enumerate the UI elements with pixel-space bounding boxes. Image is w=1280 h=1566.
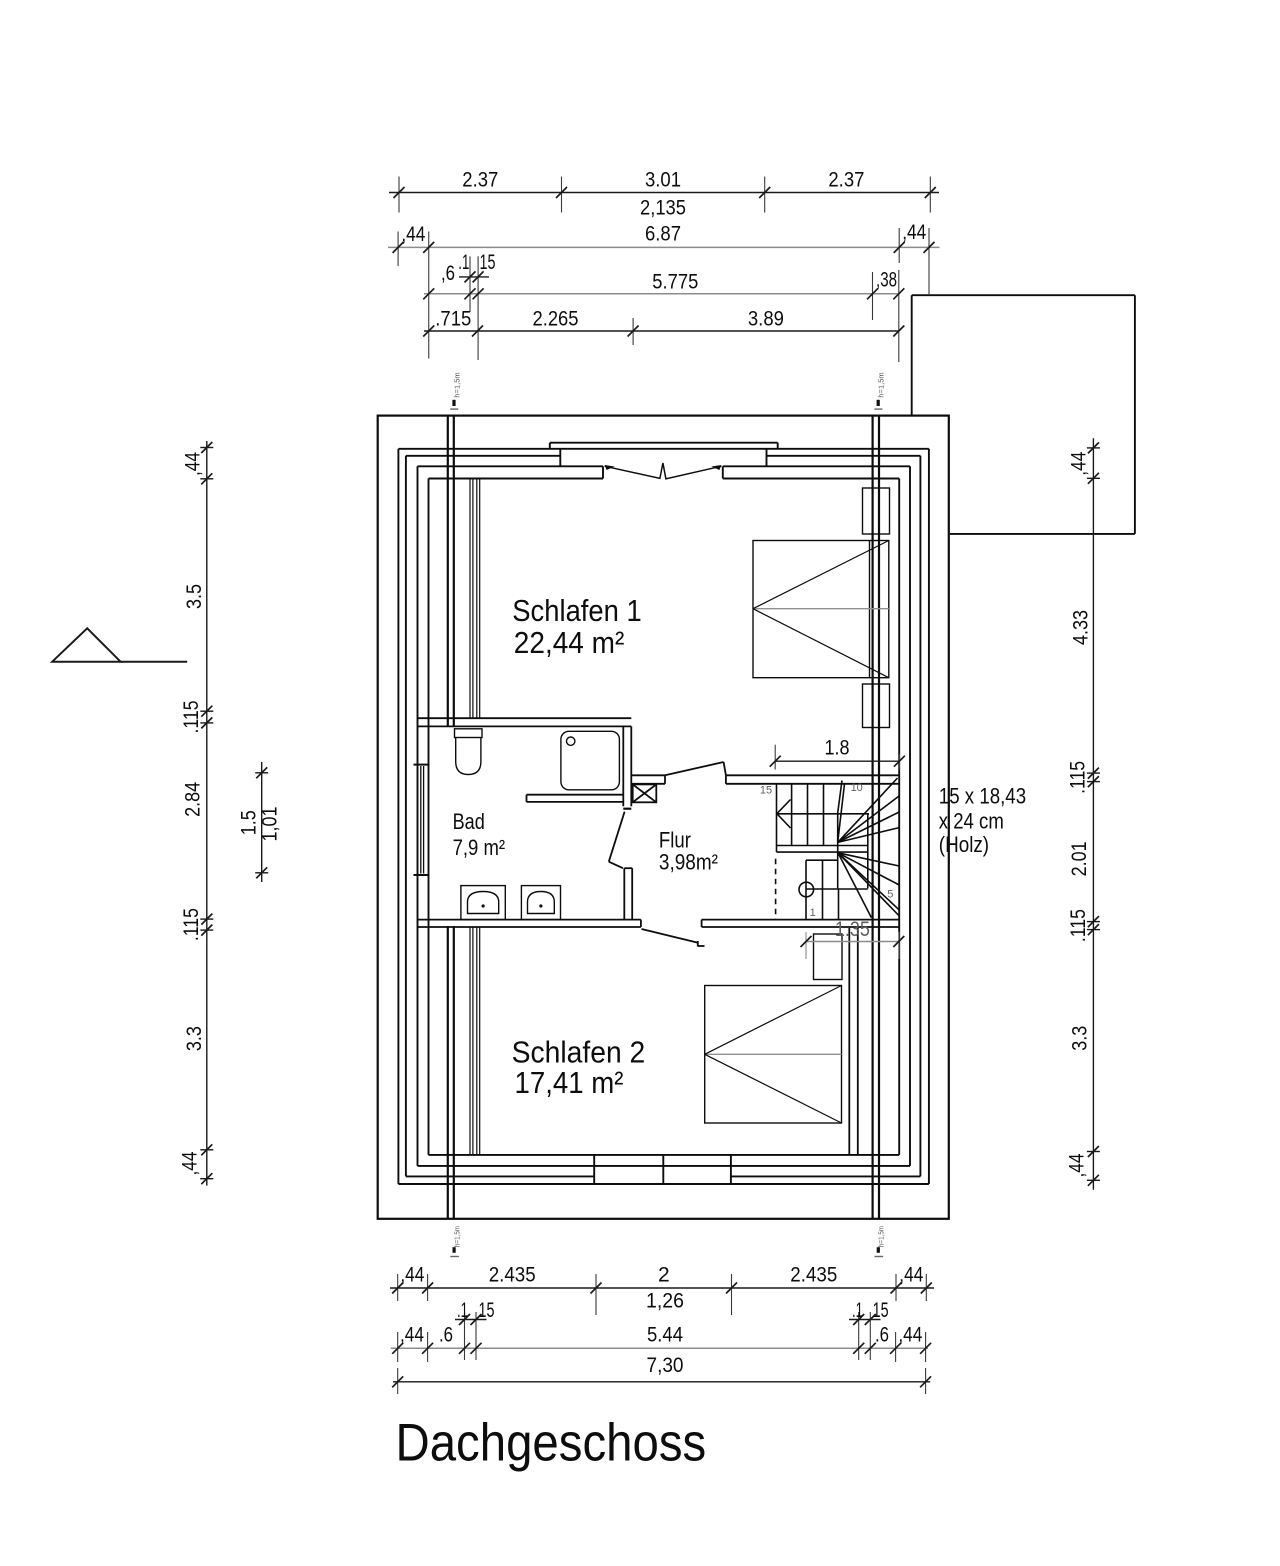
svg-text:,38: ,38: [876, 269, 897, 292]
svg-text:.1: .1: [457, 1299, 468, 1322]
svg-text:Dachgeschoss: Dachgeschoss: [396, 1414, 707, 1473]
svg-text:22,44 m²: 22,44 m²: [514, 625, 625, 660]
svg-text:,44: ,44: [1068, 451, 1091, 475]
svg-text:.115: .115: [180, 908, 203, 941]
svg-text:5: 5: [887, 889, 893, 901]
svg-text:6.87: 6.87: [645, 223, 681, 246]
svg-text:.1: .1: [458, 251, 469, 274]
svg-text:h=1,5m: h=1,5m: [453, 372, 462, 397]
svg-text:3.3: 3.3: [183, 1026, 206, 1051]
svg-text:,44: ,44: [182, 452, 205, 476]
svg-text:.115: .115: [1067, 909, 1090, 942]
svg-text:x 24 cm: x 24 cm: [939, 809, 1004, 834]
svg-text:Bad: Bad: [453, 809, 485, 834]
svg-text:15: 15: [479, 1299, 495, 1322]
svg-text:1,01: 1,01: [259, 807, 282, 842]
svg-text:h=1,5m: h=1,5m: [877, 372, 886, 397]
svg-text:3.5: 3.5: [183, 584, 206, 609]
svg-text:h=1,5m: h=1,5m: [453, 1226, 462, 1247]
svg-text:1: 1: [810, 907, 816, 919]
svg-text:1.8: 1.8: [825, 737, 850, 760]
svg-text:15: 15: [873, 1299, 889, 1322]
svg-text:2: 2: [658, 1264, 670, 1287]
svg-text:5.44: 5.44: [647, 1324, 683, 1347]
svg-text:2.435: 2.435: [489, 1264, 536, 1287]
svg-text:,44: ,44: [400, 1264, 424, 1287]
svg-text:1,26: 1,26: [646, 1290, 684, 1313]
svg-text:,44: ,44: [898, 1324, 922, 1347]
svg-text:17,41 m²: 17,41 m²: [515, 1065, 624, 1100]
svg-text:.6: .6: [439, 1324, 453, 1347]
svg-text:3.01: 3.01: [645, 169, 681, 192]
svg-text:2.265: 2.265: [533, 308, 579, 331]
svg-text:,44: ,44: [1066, 1153, 1089, 1177]
svg-text:2.37: 2.37: [828, 169, 864, 192]
svg-text:1.35: 1.35: [835, 918, 870, 941]
svg-text:,6: ,6: [441, 262, 455, 285]
svg-text:10: 10: [851, 782, 863, 794]
svg-text:,44: ,44: [400, 1324, 424, 1347]
svg-text:.6: .6: [875, 1324, 889, 1347]
svg-text:.715: .715: [435, 308, 471, 331]
svg-text:7,30: 7,30: [647, 1354, 684, 1377]
svg-text:2.84: 2.84: [182, 782, 205, 817]
svg-text:,44: ,44: [902, 221, 926, 244]
svg-text:3.3: 3.3: [1068, 1026, 1091, 1051]
svg-text:2.435: 2.435: [790, 1264, 837, 1287]
svg-text:5.775: 5.775: [652, 271, 698, 294]
svg-text:Schlafen 1: Schlafen 1: [512, 593, 641, 628]
svg-text:h=1,5m: h=1,5m: [877, 1226, 886, 1247]
svg-text:,44: ,44: [401, 223, 425, 246]
svg-text:3,98m²: 3,98m²: [659, 850, 718, 875]
svg-text:.1: .1: [852, 1299, 863, 1322]
svg-text:15 x 18,43: 15 x 18,43: [939, 783, 1026, 808]
svg-text:15: 15: [480, 251, 496, 274]
svg-text:2.01: 2.01: [1068, 841, 1091, 876]
svg-text:15: 15: [760, 785, 772, 797]
svg-text:(Holz): (Holz): [939, 832, 989, 857]
svg-text:3.89: 3.89: [748, 308, 784, 331]
svg-text:7,9 m²: 7,9 m²: [453, 835, 506, 860]
svg-text:1.5: 1.5: [237, 810, 260, 835]
svg-text:2,135: 2,135: [640, 196, 686, 219]
svg-text:4.33: 4.33: [1070, 610, 1093, 645]
svg-text:2.37: 2.37: [462, 169, 498, 192]
svg-text:.115: .115: [1067, 761, 1090, 794]
svg-text:.115: .115: [180, 701, 203, 734]
svg-text:,44: ,44: [899, 1264, 923, 1287]
svg-text:,44: ,44: [179, 1151, 202, 1175]
